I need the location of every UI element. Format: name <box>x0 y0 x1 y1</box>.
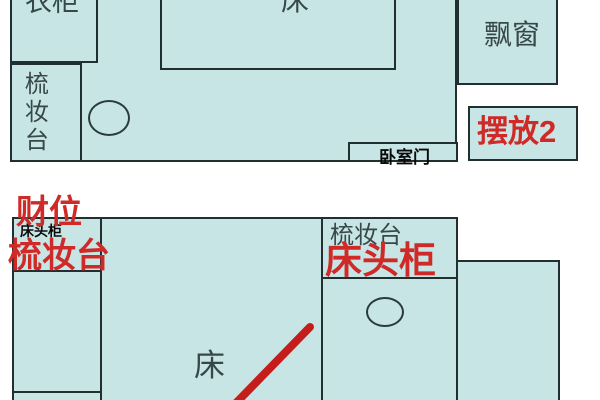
bed-box-top-plan <box>160 0 396 70</box>
bed-label-bottom-plan: 床 <box>194 349 225 383</box>
dresser-label-vertical: 梳妆台 <box>20 71 46 166</box>
bed-label-top-plan: 床 <box>281 0 309 17</box>
wealth-spot-label: 财位 <box>16 194 82 230</box>
bedroom-door-label: 卧室门 <box>379 149 430 168</box>
right-side-box <box>456 260 560 400</box>
right-column-divider-line <box>321 217 323 400</box>
stool-circle-top-plan <box>88 100 130 136</box>
left-column-lower-line <box>12 391 102 393</box>
wardrobe-label: 衣柜 <box>25 0 79 18</box>
stool-circle-bottom-plan <box>366 297 404 327</box>
dresser-red-label: 梳妆台 <box>8 238 110 275</box>
bay-window-label: 飘窗 <box>484 20 540 51</box>
floor-plan-canvas: 衣柜 梳妆台 床 飘窗 卧室门 摆放2 财位 床头柜 梳妆台 梳妆台 床头柜 床 <box>0 0 600 400</box>
bedside-cabinet-red-label: 床头柜 <box>325 241 436 282</box>
placement-2-label: 摆放2 <box>477 115 556 149</box>
